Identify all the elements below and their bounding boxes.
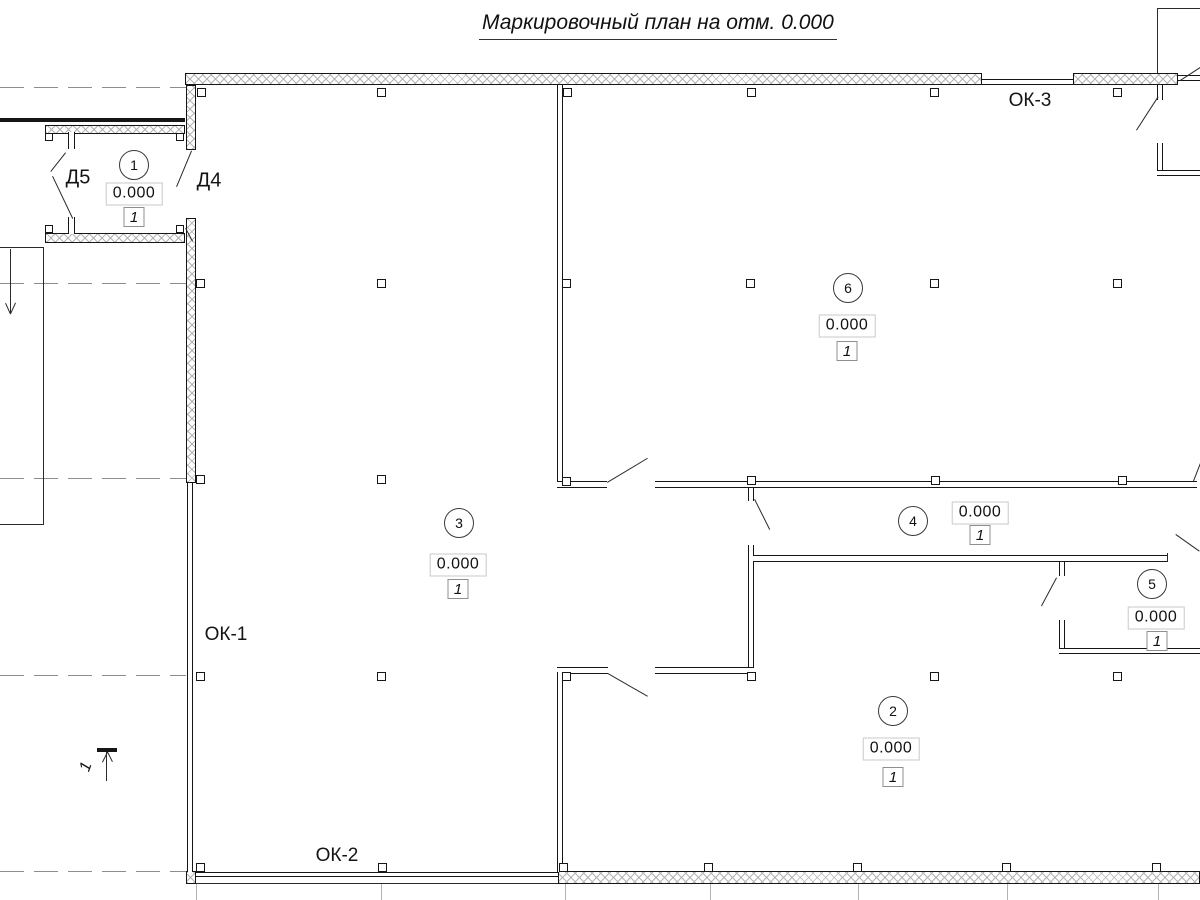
column-marker <box>377 88 386 97</box>
floor-plan: Маркировочный план на отм. 0.000 ОК-3 ОК… <box>0 0 1200 900</box>
column-marker <box>196 279 205 288</box>
hatched-wall <box>185 73 982 85</box>
section-cut-label: 1 <box>76 760 96 775</box>
door-label-d5: Д5 <box>66 167 91 190</box>
hatched-wall <box>186 85 196 150</box>
door-jamb <box>68 132 75 149</box>
column-marker <box>931 476 940 485</box>
column-marker <box>196 863 205 872</box>
wall-line <box>1167 553 1168 562</box>
wall-line <box>1157 8 1158 73</box>
wall-line <box>1158 8 1200 9</box>
grid-line <box>196 884 197 900</box>
hatched-wall <box>45 125 185 134</box>
leader-line <box>1175 534 1200 552</box>
column-marker <box>197 88 206 97</box>
leader-line <box>607 458 648 483</box>
wall-line <box>10 249 11 313</box>
column-marker <box>562 477 571 486</box>
finish-number-box: 1 <box>883 767 904 787</box>
grid-line <box>565 884 566 900</box>
room-number-circle: 3 <box>444 508 474 538</box>
window-label-ok3: ОК-3 <box>1009 90 1052 112</box>
hatched-wall <box>186 218 196 483</box>
partition-wall <box>1059 648 1200 654</box>
grid-line <box>710 884 711 900</box>
partition-wall <box>753 555 1168 562</box>
column-marker <box>704 863 713 872</box>
finish-number-box: 1 <box>124 207 145 227</box>
wall-edge-line <box>0 118 185 122</box>
elevation-box: 0.000 <box>863 738 920 761</box>
column-marker <box>377 672 386 681</box>
window-label-ok2: ОК-2 <box>316 845 359 867</box>
room-number-circle: 2 <box>878 696 908 726</box>
room-number-circle: 1 <box>119 150 149 180</box>
hatched-wall <box>186 871 196 884</box>
leader-line <box>1136 96 1159 131</box>
wall-line <box>43 247 44 525</box>
partition-wall <box>655 667 754 674</box>
column-marker <box>563 88 572 97</box>
wall-line <box>107 751 113 762</box>
column-marker <box>377 279 386 288</box>
wall-line <box>0 524 44 525</box>
room-number-circle: 4 <box>898 506 928 536</box>
partition-wall <box>187 483 193 872</box>
elevation-box: 0.000 <box>819 315 876 338</box>
room-number-circle: 5 <box>1137 569 1167 599</box>
column-marker <box>562 672 571 681</box>
column-marker <box>378 863 387 872</box>
partition-wall <box>196 872 558 877</box>
leader-line <box>176 150 192 187</box>
partition-wall <box>557 672 563 872</box>
elevation-box: 0.000 <box>1128 607 1185 630</box>
grid-line-dashed <box>0 478 186 479</box>
grid-line-dashed <box>0 283 186 284</box>
column-marker <box>1118 476 1127 485</box>
column-marker <box>1113 279 1122 288</box>
partition-wall <box>748 545 754 673</box>
wall-line <box>0 247 44 248</box>
column-marker <box>559 863 568 872</box>
column-marker <box>747 672 756 681</box>
column-marker <box>930 88 939 97</box>
column-marker <box>562 279 571 288</box>
finish-number-box: 1 <box>448 579 469 599</box>
grid-line <box>1158 884 1159 900</box>
leader-line <box>754 499 770 530</box>
partition-wall <box>655 481 1197 488</box>
column-marker <box>1002 863 1011 872</box>
wall-hook <box>45 133 53 141</box>
grid-line-dashed <box>0 87 186 88</box>
leader-line <box>1193 463 1200 482</box>
column-marker <box>377 475 386 484</box>
wall-line <box>196 883 558 884</box>
wall-hook <box>176 133 184 141</box>
grid-line <box>858 884 859 900</box>
column-marker <box>930 279 939 288</box>
grid-line <box>381 884 382 900</box>
hatched-wall <box>558 871 1200 884</box>
leader-line <box>1041 577 1057 606</box>
column-marker <box>853 863 862 872</box>
hatched-wall <box>45 233 185 243</box>
door-label-d4: Д4 <box>197 170 222 193</box>
grid-line-dashed <box>0 871 186 872</box>
door-jamb <box>1059 562 1065 576</box>
plan-title: Маркировочный план на отм. 0.000 <box>479 11 837 40</box>
grid-line <box>1007 884 1008 900</box>
hatched-wall <box>1073 73 1178 85</box>
leader-line <box>607 673 648 697</box>
leader-line <box>50 152 66 172</box>
elevation-box: 0.000 <box>106 183 163 206</box>
partition-wall <box>982 79 1073 85</box>
elevation-box: 0.000 <box>430 554 487 577</box>
column-marker <box>196 672 205 681</box>
partition-wall <box>1157 170 1200 176</box>
column-marker <box>1113 672 1122 681</box>
column-marker <box>747 476 756 485</box>
finish-number-box: 1 <box>837 341 858 361</box>
finish-number-box: 1 <box>970 525 991 545</box>
elevation-box: 0.000 <box>952 502 1009 525</box>
finish-number-box: 1 <box>1147 631 1168 651</box>
column-marker <box>930 672 939 681</box>
window-label-ok1: ОК-1 <box>205 624 248 646</box>
column-marker <box>1152 863 1161 872</box>
column-marker <box>1113 88 1122 97</box>
column-marker <box>196 475 205 484</box>
grid-line-dashed <box>0 675 186 676</box>
wall-hook <box>45 225 53 233</box>
room-number-circle: 6 <box>833 273 863 303</box>
door-jamb <box>68 217 75 234</box>
column-marker <box>747 88 756 97</box>
wall-hook <box>176 225 184 233</box>
column-marker <box>746 279 755 288</box>
